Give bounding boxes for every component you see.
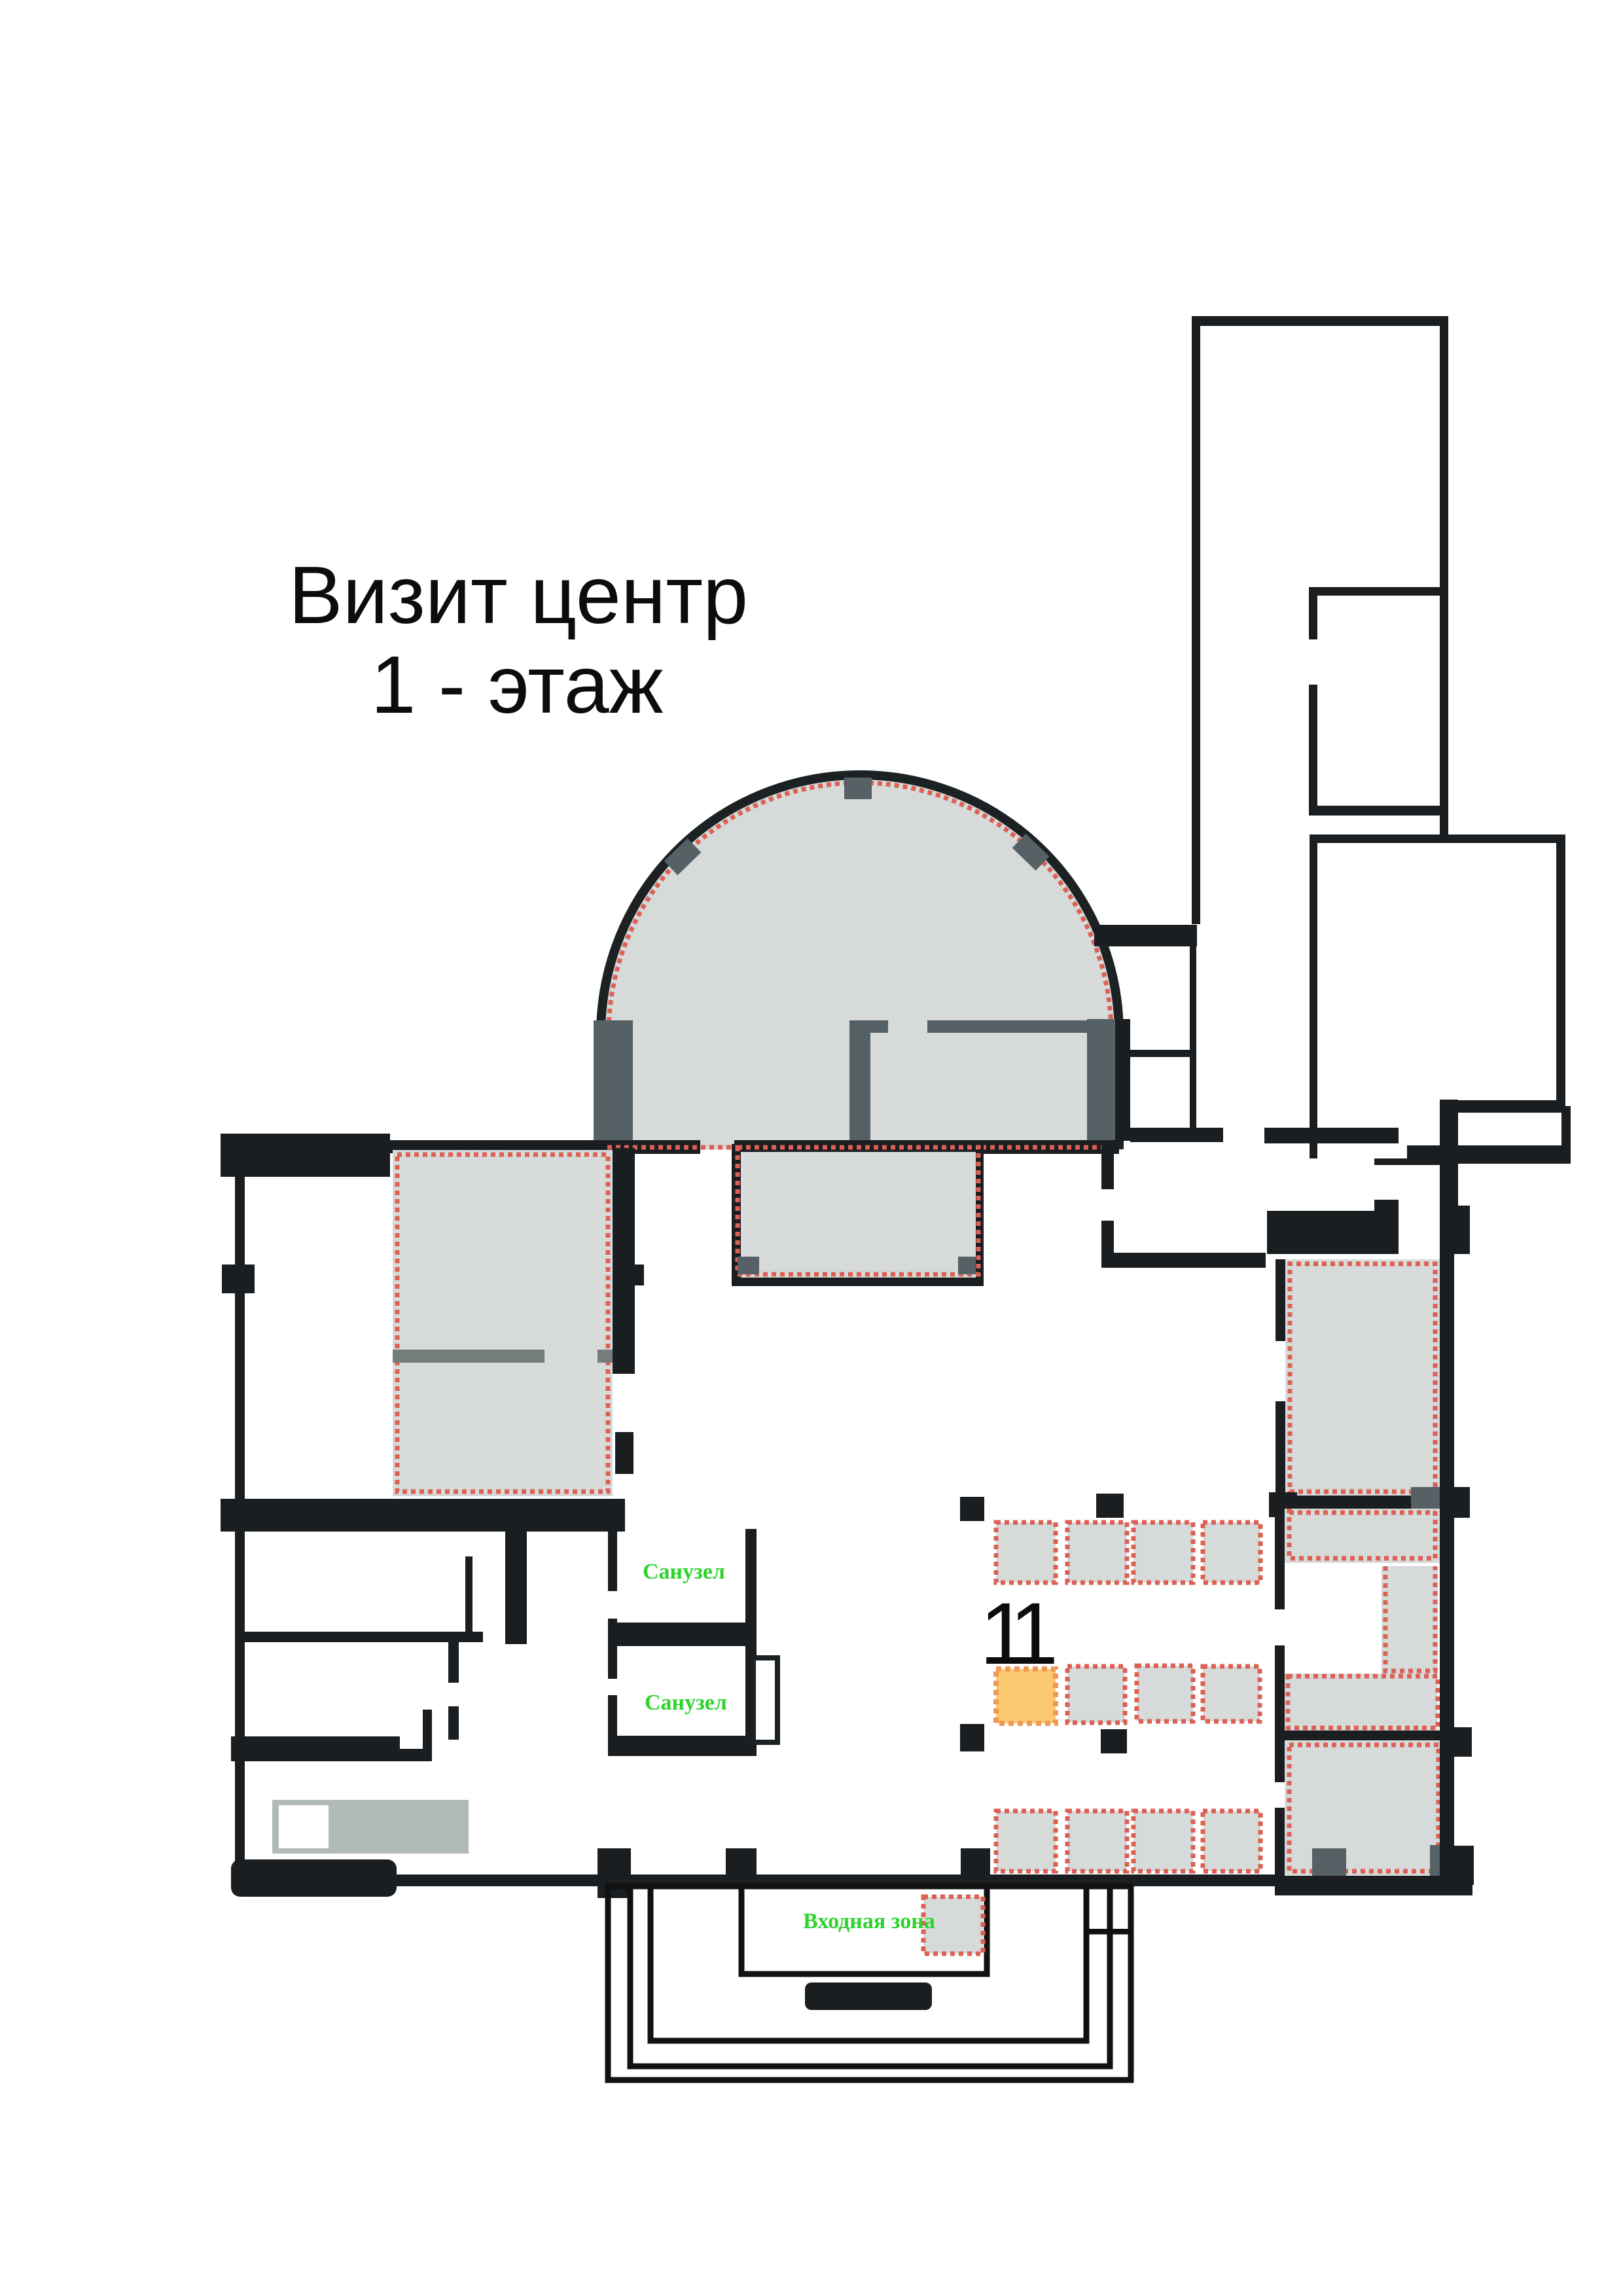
svg-text:Санузел: Санузел: [643, 1560, 725, 1584]
svg-text:Визит центр: Визит центр: [289, 550, 748, 641]
svg-text:1 - этаж: 1 - этаж: [370, 640, 663, 730]
svg-text:Санузел: Санузел: [645, 1691, 727, 1715]
svg-text:Входная зона: Входная зона: [803, 1909, 935, 1933]
svg-text:11: 11: [980, 1585, 1054, 1683]
